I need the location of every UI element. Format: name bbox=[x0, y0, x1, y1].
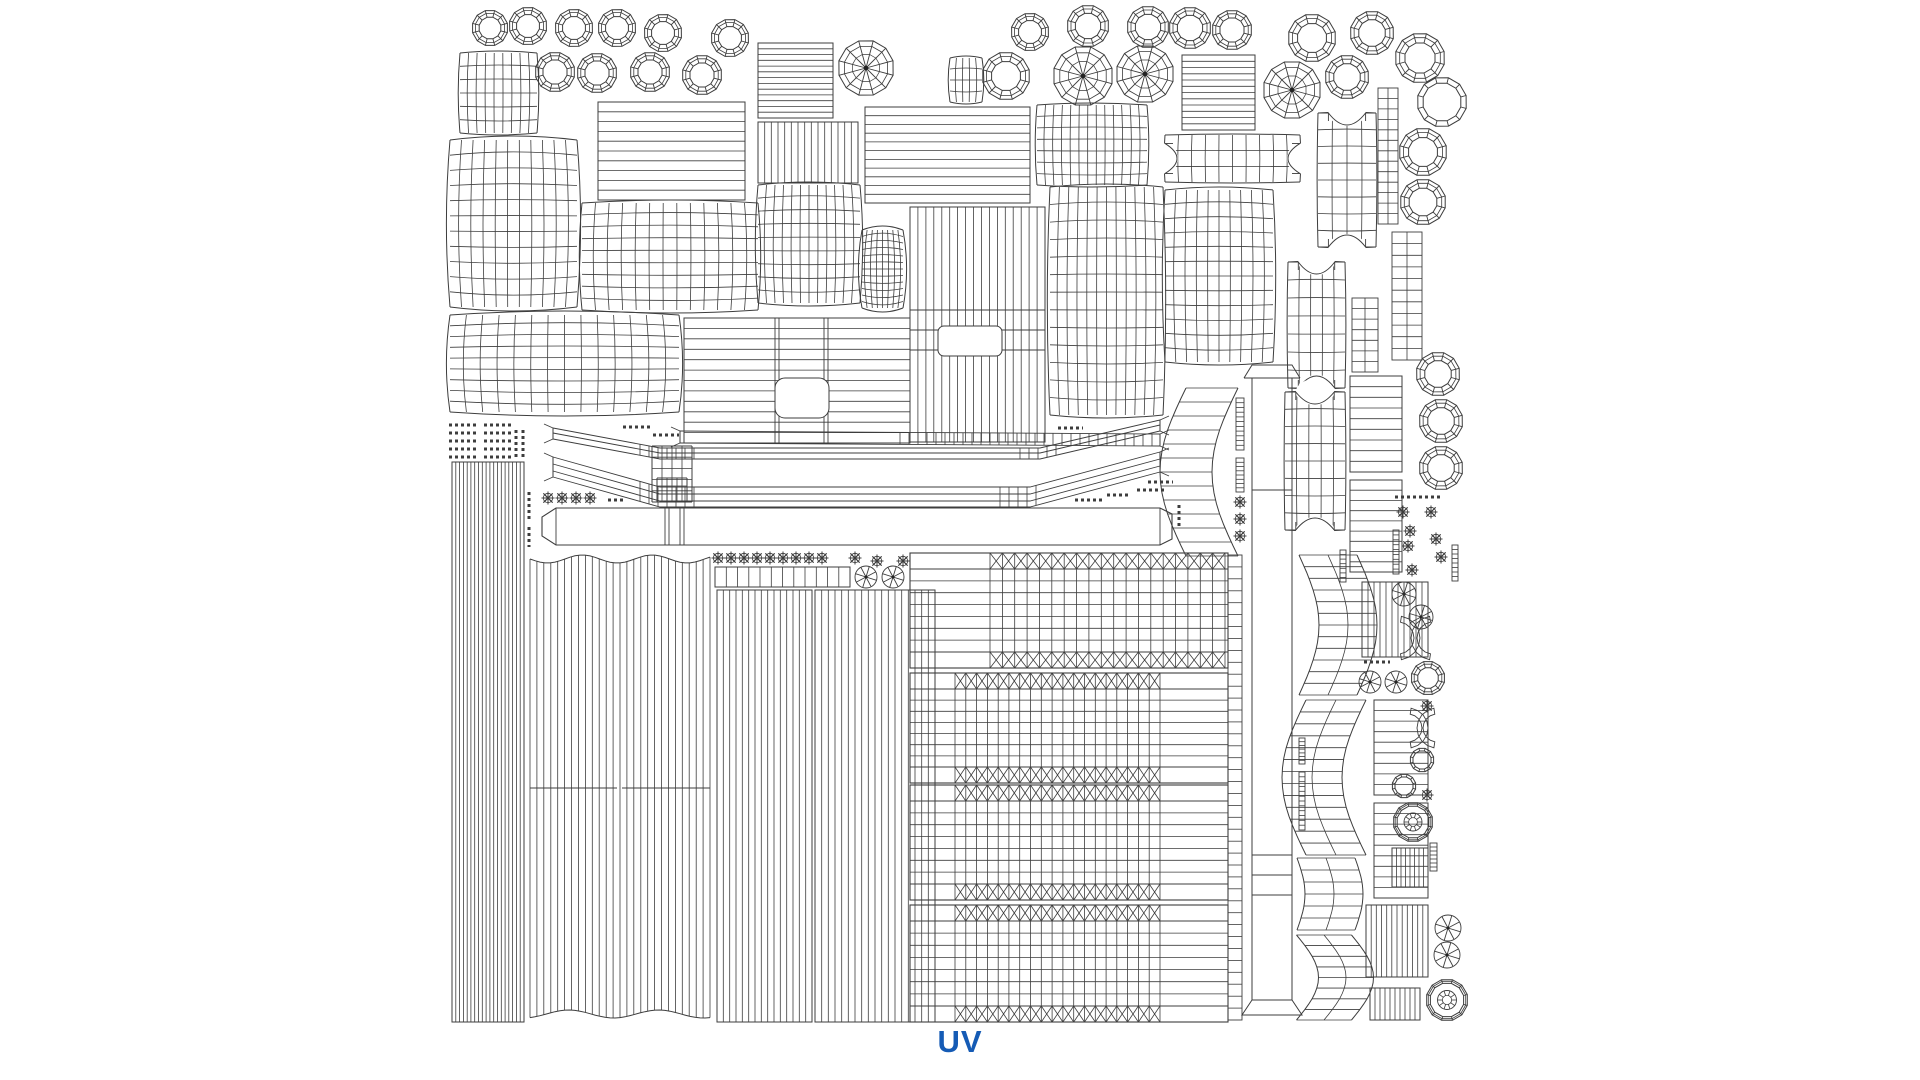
uv-island-flower-50 bbox=[751, 552, 764, 565]
uv-island-hlines-86 bbox=[865, 107, 1030, 203]
uv-island-ring-6 bbox=[536, 53, 575, 92]
uv-island-ring-19 bbox=[1400, 129, 1446, 175]
uv-island-hlines-88 bbox=[1350, 376, 1402, 472]
uv-island-ring-5 bbox=[712, 20, 749, 57]
uv-island-flower-67 bbox=[1402, 540, 1415, 553]
uv-island-flower-64 bbox=[1425, 506, 1438, 519]
uv-island-wheelS-41 bbox=[1435, 915, 1461, 941]
uv-island-flower-63 bbox=[1397, 506, 1410, 519]
uv-island-flower-55 bbox=[816, 552, 829, 565]
uv-label: UV bbox=[0, 1024, 1920, 1060]
uv-island-wheelS-38 bbox=[1385, 671, 1407, 693]
uv-island-ring-15 bbox=[1289, 15, 1335, 61]
uv-island-pillar-106 bbox=[1242, 365, 1302, 1015]
uv-island-ringp-28 bbox=[1392, 774, 1415, 797]
uv-island-tread-149 bbox=[910, 785, 1228, 900]
uv-island-vband-114 bbox=[1297, 935, 1374, 1020]
uv-island-ring-24 bbox=[1420, 447, 1463, 490]
uv-island-ring-23 bbox=[1420, 400, 1463, 443]
uv-island-flower-60 bbox=[1234, 513, 1247, 526]
uv-island-ring-3 bbox=[599, 10, 636, 47]
uv-island-flower-49 bbox=[738, 552, 751, 565]
uv-island-flower-57 bbox=[871, 555, 884, 568]
uv-island-flower-58 bbox=[897, 555, 910, 568]
uv-island-flower-66 bbox=[1430, 533, 1443, 546]
uv-island-ladder-121 bbox=[1352, 298, 1378, 372]
uv-island-axle-105 bbox=[542, 508, 1172, 545]
uv-island-hlines-90 bbox=[1374, 700, 1428, 795]
uv-island-ring-12 bbox=[1128, 7, 1169, 48]
uv-island-ring-9 bbox=[683, 56, 722, 95]
uv-island-ringp-26 bbox=[1418, 78, 1466, 126]
uv-island-wheel-34 bbox=[1264, 62, 1320, 118]
uv-island-flower-43 bbox=[542, 492, 555, 505]
uv-island-flower-48 bbox=[725, 552, 738, 565]
uv-island-bonev-116 bbox=[1317, 100, 1377, 260]
uv-island-vlines-100 bbox=[715, 567, 850, 587]
uv-island-grid-77 bbox=[1035, 103, 1149, 187]
uv-island-hlines-85 bbox=[758, 43, 833, 118]
uv-island-ring-25 bbox=[1412, 662, 1445, 695]
uv-island-flower-68 bbox=[1435, 551, 1448, 564]
uv-island-ring-1 bbox=[510, 8, 547, 45]
uv-island-ring-21 bbox=[983, 53, 1029, 99]
uv-island-grid-75 bbox=[755, 182, 862, 306]
uv-map-page: UV bbox=[0, 0, 1920, 1080]
uv-island-ladder-126 bbox=[1430, 843, 1437, 871]
uv-island-ring-16 bbox=[1351, 12, 1394, 55]
uv-island-tread-147 bbox=[910, 553, 1228, 668]
uv-island-ring-4 bbox=[645, 15, 682, 52]
uv-island-grid-81 bbox=[948, 56, 984, 104]
uv-island-wheel-31 bbox=[839, 41, 893, 95]
uv-island-holeblock-104 bbox=[684, 318, 910, 443]
uv-island-ladder-127 bbox=[1236, 398, 1244, 450]
uv-island-ring-10 bbox=[1012, 14, 1049, 51]
uv-island-hlines-87 bbox=[1182, 55, 1255, 130]
uv-island-ring-20 bbox=[1401, 180, 1445, 224]
uv-island-wheel-33 bbox=[1117, 46, 1173, 102]
uv-island-wheel-32 bbox=[1054, 47, 1112, 105]
uv-island-flower-46 bbox=[584, 492, 597, 505]
uv-island-flower-65 bbox=[1404, 525, 1417, 538]
uv-island-ladder-119 bbox=[1378, 88, 1398, 224]
uv-island-grid-76 bbox=[858, 226, 906, 312]
uv-island-ladder-124 bbox=[1452, 545, 1458, 581]
uv-island-ring-2 bbox=[556, 10, 593, 47]
uv-island-ladder-120 bbox=[1392, 232, 1422, 360]
uv-island-ring-0 bbox=[473, 11, 508, 46]
uv-island-ladder-125 bbox=[1393, 530, 1399, 574]
uv-island-flower-45 bbox=[570, 492, 583, 505]
uv-island-grid-73 bbox=[446, 136, 580, 311]
uv-island-ladder-123 bbox=[1340, 550, 1346, 582]
uv-island-ring-18 bbox=[1396, 34, 1444, 82]
uv-island-flower-61 bbox=[1234, 530, 1247, 543]
uv-island-flower-56 bbox=[849, 552, 862, 565]
uv-island-wheelS-35 bbox=[855, 566, 877, 588]
uv-island-flower-53 bbox=[790, 552, 803, 565]
uv-island-vlines-97 bbox=[1366, 905, 1428, 977]
uv-island-hlines-89 bbox=[1350, 480, 1402, 572]
uv-island-vlines-94 bbox=[717, 590, 812, 1022]
uv-island-ladder-122 bbox=[1228, 555, 1242, 1020]
uv-island-tread-150 bbox=[910, 905, 1228, 1022]
uv-island-grid-80 bbox=[446, 311, 682, 416]
uv-island-ring-22 bbox=[1417, 353, 1460, 396]
uv-island-flower-44 bbox=[556, 492, 569, 505]
uv-island-vband-112 bbox=[1282, 700, 1366, 855]
uv-map-canvas bbox=[0, 0, 1920, 1080]
uv-island-vlines-93 bbox=[452, 462, 524, 1022]
uv-island-bonev-118 bbox=[1284, 379, 1346, 543]
uv-island-flower-69 bbox=[1406, 564, 1419, 577]
uv-island-bearing-29 bbox=[1394, 803, 1433, 842]
uv-island-ringp-27 bbox=[1410, 748, 1433, 771]
uv-island-ring-7 bbox=[578, 54, 617, 93]
uv-island-vwavy-101 bbox=[530, 555, 710, 1018]
uv-island-grid-72 bbox=[458, 51, 539, 135]
uv-island-vlines-98 bbox=[1370, 988, 1420, 1020]
uv-island-dashcluster-146 bbox=[449, 425, 513, 457]
uv-island-ring-8 bbox=[631, 53, 670, 92]
uv-island-ring-17 bbox=[1326, 56, 1369, 99]
uv-island-tallblock-103 bbox=[910, 207, 1045, 442]
uv-island-ring-14 bbox=[1213, 11, 1252, 50]
uv-island-grid-79 bbox=[1162, 187, 1275, 365]
uv-island-ladder-130 bbox=[1299, 772, 1305, 830]
uv-island-vlines-99 bbox=[1392, 848, 1428, 887]
uv-island-wheelS-36 bbox=[882, 566, 904, 588]
uv-island-band-108 bbox=[544, 448, 1169, 507]
uv-island-wheelS-42 bbox=[1434, 942, 1460, 968]
uv-island-ladder-129 bbox=[1299, 738, 1305, 764]
uv-island-flower-47 bbox=[712, 552, 725, 565]
uv-island-ladder-128 bbox=[1236, 458, 1244, 492]
uv-island-hlines-84 bbox=[598, 102, 745, 200]
uv-island-boneh-115 bbox=[1152, 134, 1313, 183]
uv-island-grid-78 bbox=[1047, 184, 1165, 418]
uv-island-ring-13 bbox=[1170, 8, 1211, 49]
uv-island-flower-52 bbox=[777, 552, 790, 565]
uv-island-flower-51 bbox=[764, 552, 777, 565]
uv-island-ring-11 bbox=[1068, 6, 1109, 47]
uv-island-vband-113 bbox=[1297, 858, 1363, 930]
uv-island-tread-148 bbox=[910, 673, 1228, 783]
uv-island-vlines-92 bbox=[758, 122, 858, 183]
uv-island-bearing-30 bbox=[1427, 980, 1468, 1021]
uv-island-flower-59 bbox=[1234, 496, 1247, 509]
uv-island-grid-74 bbox=[579, 200, 760, 313]
uv-island-flower-54 bbox=[803, 552, 816, 565]
